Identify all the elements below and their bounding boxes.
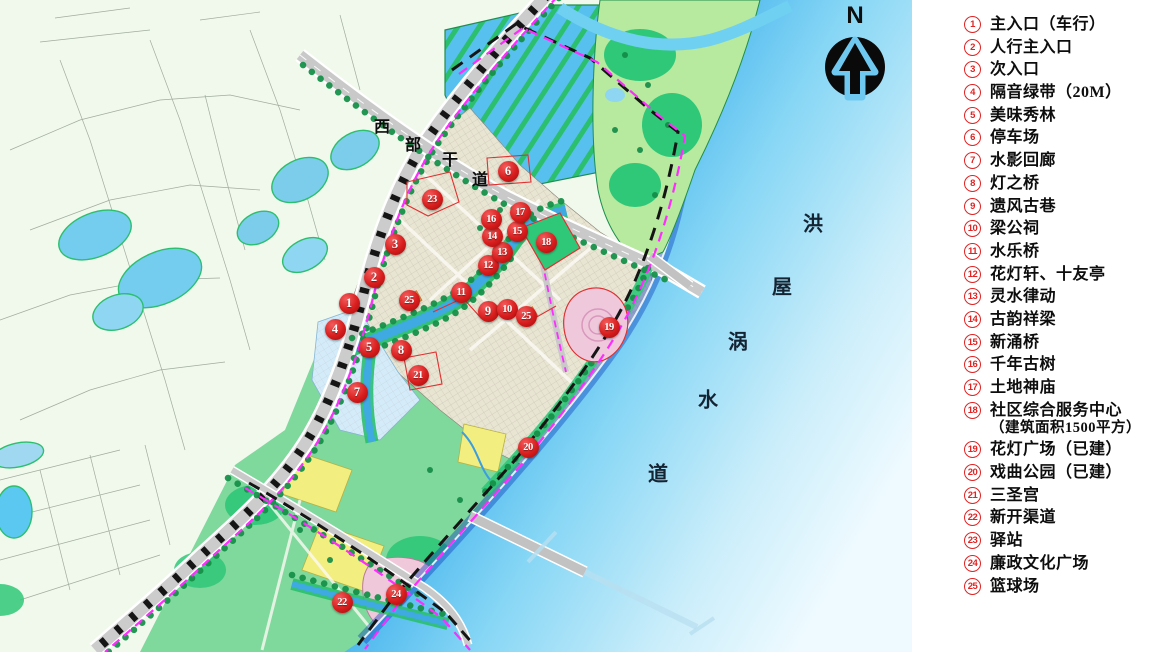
legend-item-13: 13灵水律动 <box>964 287 1164 306</box>
map-marker-2: 2 <box>364 267 385 288</box>
map-marker-15: 15 <box>507 221 528 242</box>
legend-number-badge: 19 <box>964 441 981 458</box>
map-marker-16: 16 <box>481 209 502 230</box>
legend-number-badge: 14 <box>964 311 981 328</box>
map-marker-11: 11 <box>451 282 472 303</box>
legend-number-badge: 24 <box>964 555 981 572</box>
legend-item-label: 次入口 <box>990 60 1040 79</box>
legend-number-badge: 25 <box>964 578 981 595</box>
legend-number-badge: 15 <box>964 334 981 351</box>
legend-item-label: 廉政文化广场 <box>990 554 1089 573</box>
legend-item-14: 14古韵祥梁 <box>964 310 1164 329</box>
map-marker-22: 22 <box>332 592 353 613</box>
legend-item-label: 美味秀林 <box>990 106 1056 125</box>
legend-list: 1主入口（车行）2人行主入口3次入口4隔音绿带（20M）5美味秀林6停车场7水影… <box>964 15 1164 596</box>
river-name-char: 涡 <box>728 326 748 355</box>
legend-number-badge: 23 <box>964 532 981 549</box>
legend-item-label: 戏曲公园（已建） <box>990 463 1122 482</box>
legend-item-18: 18社区综合服务中心（建筑面积1500平方） <box>964 401 1164 437</box>
legend-item-label: 人行主入口 <box>990 38 1073 57</box>
river-name-char: 屋 <box>772 271 792 300</box>
legend-item-label: 主入口（车行） <box>990 15 1106 34</box>
legend-number-badge: 21 <box>964 487 981 504</box>
legend-item-2: 2人行主入口 <box>964 38 1164 57</box>
legend-item-20: 20戏曲公园（已建） <box>964 463 1164 482</box>
map-marker-5: 5 <box>359 337 380 358</box>
legend-item-25: 25篮球场 <box>964 577 1164 596</box>
legend-item-16: 16千年古树 <box>964 355 1164 374</box>
legend-item-label: 花灯轩、十友亭 <box>990 265 1106 284</box>
legend-item-label: 千年古树 <box>990 355 1056 374</box>
map-marker-1: 1 <box>339 293 360 314</box>
legend-item-19: 19花灯广场（已建） <box>964 440 1164 459</box>
map-marker-8: 8 <box>391 340 412 361</box>
legend-item-label: 梁公祠 <box>990 219 1040 238</box>
legend-item-15: 15新涌桥 <box>964 333 1164 352</box>
road-name-char: 道 <box>472 166 488 190</box>
legend-number-badge: 7 <box>964 152 981 169</box>
legend-item-23: 23驿站 <box>964 531 1164 550</box>
road-name-char: 干 <box>442 146 458 170</box>
map-marker-10: 10 <box>497 299 518 320</box>
legend-item-label: 水乐桥 <box>990 242 1040 261</box>
legend-item-label: 社区综合服务中心（建筑面积1500平方） <box>990 401 1141 437</box>
legend-number-badge: 9 <box>964 198 981 215</box>
road-name-char: 部 <box>405 131 421 155</box>
legend-item-10: 10梁公祠 <box>964 219 1164 238</box>
road-name-char: 西 <box>374 113 390 137</box>
map-drawing: N <box>0 0 912 652</box>
legend-item-1: 1主入口（车行） <box>964 15 1164 34</box>
legend-item-22: 22新开渠道 <box>964 508 1164 527</box>
legend-item-label: 水影回廊 <box>990 151 1056 170</box>
map-marker-19: 19 <box>599 317 620 338</box>
legend-item-label: 花灯广场（已建） <box>990 440 1122 459</box>
legend-item-label: 停车场 <box>990 128 1040 147</box>
map-canvas: N 12345678910111213141516171819202122232… <box>0 0 912 652</box>
legend-panel: 1主入口（车行）2人行主入口3次入口4隔音绿带（20M）5美味秀林6停车场7水影… <box>912 0 1168 652</box>
legend-number-badge: 18 <box>964 402 981 419</box>
legend-number-badge: 11 <box>964 243 981 260</box>
legend-number-badge: 10 <box>964 220 981 237</box>
legend-item-sublabel: （建筑面积1500平方） <box>990 420 1141 437</box>
map-marker-17: 17 <box>510 202 531 223</box>
map-marker-6: 6 <box>498 161 519 182</box>
legend-number-badge: 4 <box>964 84 981 101</box>
legend-number-badge: 22 <box>964 509 981 526</box>
legend-number-badge: 1 <box>964 16 981 33</box>
map-marker-24: 24 <box>386 584 407 605</box>
map-marker-18: 18 <box>536 232 557 253</box>
map-marker-21: 21 <box>408 365 429 386</box>
map-marker-9: 9 <box>478 301 499 322</box>
legend-item-label: 新涌桥 <box>990 333 1040 352</box>
map-marker-25: 25 <box>399 290 420 311</box>
legend-item-5: 5美味秀林 <box>964 106 1164 125</box>
map-marker-7: 7 <box>347 382 368 403</box>
river-name-char: 洪 <box>803 208 823 237</box>
river-name-char: 道 <box>648 458 668 487</box>
legend-number-badge: 2 <box>964 39 981 56</box>
legend-number-badge: 5 <box>964 107 981 124</box>
map-marker-3: 3 <box>385 234 406 255</box>
legend-item-3: 3次入口 <box>964 60 1164 79</box>
legend-item-17: 17土地神庙 <box>964 378 1164 397</box>
legend-item-21: 21三圣宫 <box>964 486 1164 505</box>
north-label: N <box>846 2 863 29</box>
legend-item-label: 三圣宫 <box>990 486 1040 505</box>
legend-number-badge: 8 <box>964 175 981 192</box>
legend-item-8: 8灯之桥 <box>964 174 1164 193</box>
legend-number-badge: 17 <box>964 379 981 396</box>
map-marker-25: 25 <box>516 306 537 327</box>
legend-number-badge: 20 <box>964 464 981 481</box>
legend-item-label: 古韵祥梁 <box>990 310 1056 329</box>
planning-map-page: N 12345678910111213141516171819202122232… <box>0 0 1168 652</box>
legend-number-badge: 13 <box>964 288 981 305</box>
legend-item-24: 24廉政文化广场 <box>964 554 1164 573</box>
legend-item-4: 4隔音绿带（20M） <box>964 83 1164 102</box>
legend-item-7: 7水影回廊 <box>964 151 1164 170</box>
map-marker-23: 23 <box>422 189 443 210</box>
legend-item-11: 11水乐桥 <box>964 242 1164 261</box>
legend-item-label: 隔音绿带（20M） <box>990 83 1122 102</box>
legend-item-6: 6停车场 <box>964 128 1164 147</box>
legend-item-label: 驿站 <box>990 531 1023 550</box>
legend-item-label: 新开渠道 <box>990 508 1056 527</box>
legend-number-badge: 6 <box>964 129 981 146</box>
legend-item-label: 篮球场 <box>990 577 1040 596</box>
legend-item-label: 灯之桥 <box>990 174 1040 193</box>
river-name-char: 水 <box>698 384 718 413</box>
legend-number-badge: 3 <box>964 61 981 78</box>
map-marker-4: 4 <box>325 319 346 340</box>
map-marker-20: 20 <box>518 437 539 458</box>
legend-item-label: 土地神庙 <box>990 378 1056 397</box>
legend-item-9: 9遗风古巷 <box>964 197 1164 216</box>
legend-item-label: 灵水律动 <box>990 287 1056 306</box>
legend-number-badge: 12 <box>964 266 981 283</box>
legend-item-label: 遗风古巷 <box>990 197 1056 216</box>
legend-number-badge: 16 <box>964 356 981 373</box>
legend-item-12: 12花灯轩、十友亭 <box>964 265 1164 284</box>
